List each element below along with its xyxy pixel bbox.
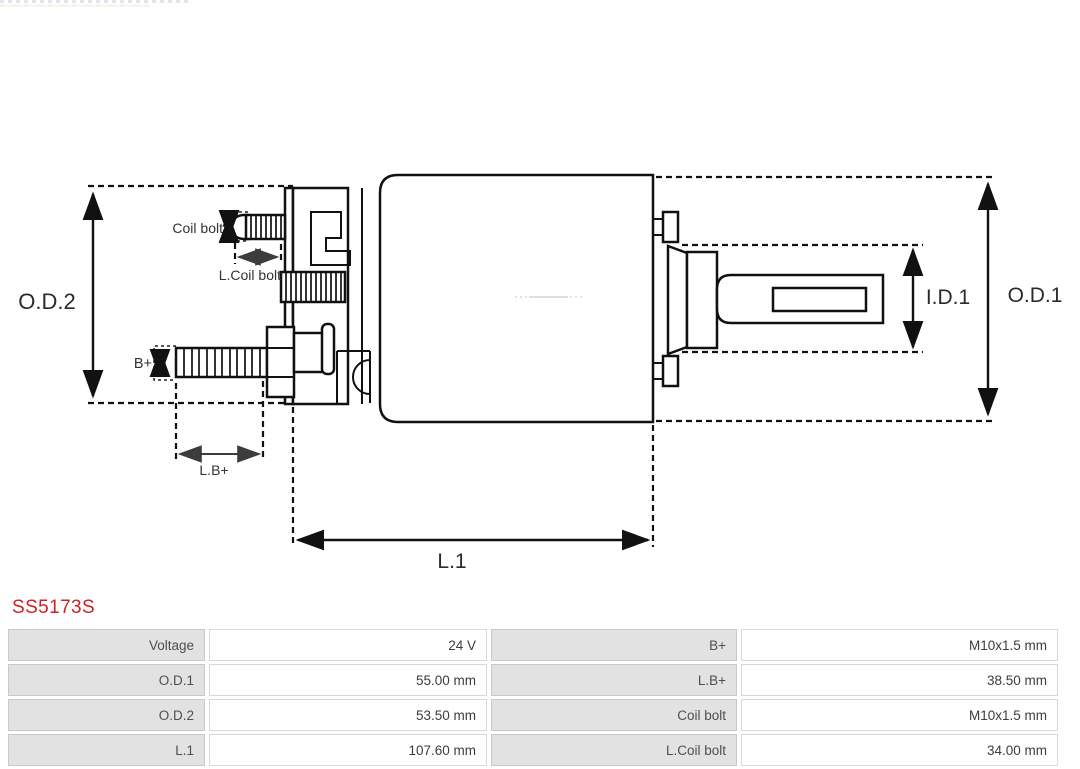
spec-label: O.D.1: [8, 664, 205, 696]
terminal-tab-top: [653, 212, 678, 242]
dim-label-l1: L.1: [437, 550, 466, 573]
terminal-tab-bottom: [653, 356, 678, 386]
spec-label: Coil bolt: [491, 699, 737, 731]
dim-label-l-b-plus: L.B+: [199, 462, 228, 478]
spec-value: 55.00 mm: [209, 664, 487, 696]
washer: [322, 324, 334, 374]
spec-value: 34.00 mm: [741, 734, 1058, 766]
part-number-link[interactable]: SS5173S: [12, 597, 95, 619]
spec-value: M10x1.5 mm: [741, 629, 1058, 661]
spec-value: M10x1.5 mm: [741, 699, 1058, 731]
spec-label: L.1: [8, 734, 205, 766]
table-row: O.D.2 53.50 mm Coil bolt M10x1.5 mm: [8, 699, 1058, 731]
table-row: Voltage 24 V B+ M10x1.5 mm: [8, 629, 1058, 661]
spec-label: O.D.2: [8, 699, 205, 731]
coil-bolt-bushing: [281, 272, 345, 302]
dim-label-od1: O.D.1: [1008, 284, 1063, 307]
table-row: O.D.1 55.00 mm L.B+ 38.50 mm: [8, 664, 1058, 696]
spec-label: B+: [491, 629, 737, 661]
dim-label-coil-bolt: Coil bolt: [172, 220, 223, 236]
plunger-slot: [773, 288, 866, 311]
dim-label-l-coil-bolt: L.Coil bolt: [219, 267, 281, 283]
plunger-collar: [687, 252, 717, 348]
spec-label: L.Coil bolt: [491, 734, 737, 766]
dim-label-b-plus: B+: [134, 356, 152, 372]
spec-table: Voltage 24 V B+ M10x1.5 mm O.D.1 55.00 m…: [4, 626, 1062, 769]
spec-value: 24 V: [209, 629, 487, 661]
coil-bolt: [232, 215, 285, 239]
plunger-boot: [668, 246, 687, 354]
spec-value: 38.50 mm: [741, 664, 1058, 696]
solenoid-cylinder: [380, 175, 653, 422]
spec-label: L.B+: [491, 664, 737, 696]
plunger: [668, 246, 883, 354]
technical-drawing: O.D.2 O.D.1 I.D.1 L.1 Coil bolt L.Coil b…: [0, 0, 1080, 590]
table-row: L.1 107.60 mm L.Coil bolt 34.00 mm: [8, 734, 1058, 766]
spec-label: Voltage: [8, 629, 205, 661]
dim-label-od2: O.D.2: [18, 289, 75, 314]
spec-value: 53.50 mm: [209, 699, 487, 731]
spacer: [294, 333, 323, 372]
dim-label-id1: I.D.1: [926, 286, 970, 309]
spec-value: 107.60 mm: [209, 734, 487, 766]
hex-nut: [267, 327, 294, 397]
